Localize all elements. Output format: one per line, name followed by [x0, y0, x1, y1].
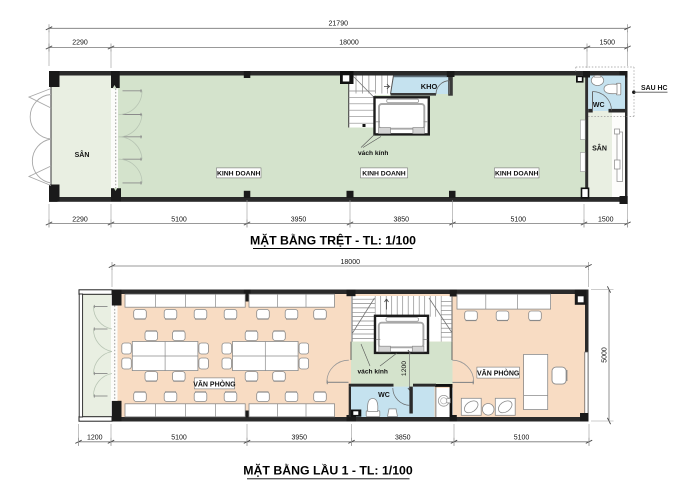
svg-text:18000: 18000	[341, 259, 361, 266]
svg-text:vách kính: vách kính	[358, 368, 388, 375]
svg-text:SÂN: SÂN	[75, 150, 90, 159]
svg-text:1200: 1200	[87, 435, 103, 442]
svg-text:MẶT BẰNG LẦU 1 - TL: 1/100: MẶT BẰNG LẦU 1 - TL: 1/100	[243, 463, 413, 478]
svg-text:SAU HC: SAU HC	[641, 85, 667, 92]
svg-text:18000: 18000	[339, 40, 359, 47]
svg-text:5100: 5100	[171, 216, 187, 223]
svg-text:MẶT BẰNG TRỆT - TL: 1/100: MẶT BẰNG TRỆT - TL: 1/100	[250, 233, 416, 248]
svg-text:5100: 5100	[514, 435, 530, 442]
svg-text:SÂN: SÂN	[592, 144, 607, 153]
svg-text:3850: 3850	[393, 216, 409, 223]
svg-text:3950: 3950	[291, 435, 307, 442]
svg-text:5100: 5100	[510, 216, 526, 223]
svg-text:VĂN PHÒNG: VĂN PHÒNG	[477, 369, 520, 378]
svg-text:KINH DOANH: KINH DOANH	[495, 171, 539, 178]
svg-text:KINH DOANH: KINH DOANH	[362, 171, 406, 178]
svg-text:WC: WC	[593, 102, 605, 109]
svg-text:1200: 1200	[401, 361, 408, 376]
svg-text:3950: 3950	[291, 216, 307, 223]
svg-text:KINH DOANH: KINH DOANH	[217, 171, 261, 178]
svg-text:WC: WC	[378, 392, 390, 399]
svg-text:KHO: KHO	[421, 82, 438, 91]
svg-text:1500: 1500	[598, 216, 614, 223]
svg-text:2290: 2290	[72, 216, 88, 223]
svg-text:VĂN PHÒNG: VĂN PHÒNG	[193, 379, 236, 388]
svg-text:3850: 3850	[395, 435, 411, 442]
svg-text:5000: 5000	[601, 347, 608, 363]
svg-text:vách kính: vách kính	[358, 150, 388, 157]
svg-text:2290: 2290	[72, 40, 88, 47]
svg-text:5100: 5100	[171, 435, 187, 442]
svg-text:1500: 1500	[599, 40, 615, 47]
svg-text:21790: 21790	[329, 20, 349, 27]
